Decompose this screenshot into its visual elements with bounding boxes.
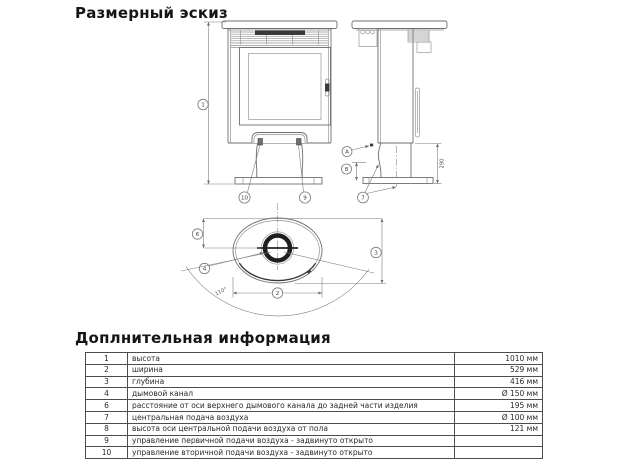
- callout-air-axis-height: 8: [342, 164, 352, 174]
- side-rear-grille: [408, 30, 429, 42]
- row-parameter: высота: [128, 353, 455, 365]
- svg-text:A: A: [345, 150, 349, 156]
- row-value: [455, 447, 543, 459]
- row-value: 1010 мм: [455, 353, 543, 365]
- table-row: 4 дымовой канал Ø 150 мм: [86, 388, 543, 400]
- row-parameter: высота оси центральной подачи воздуха от…: [128, 423, 455, 435]
- row-value: [455, 435, 543, 447]
- callout-primary-air: 9: [299, 192, 310, 203]
- svg-text:10: 10: [241, 196, 249, 202]
- table-row: 10 управление вторичной подачи воздуха -…: [86, 447, 543, 459]
- callout-secondary-air: 10: [239, 192, 250, 203]
- callout-flue-axis-to-back: 6: [192, 229, 202, 239]
- table-row: 3 глубина 416 мм: [86, 376, 543, 388]
- callout-flue: 4: [199, 263, 209, 273]
- front-view: 1 10 9: [198, 21, 337, 203]
- front-pedestal: [256, 143, 302, 178]
- row-number: 4: [86, 388, 128, 400]
- front-door: [240, 48, 331, 126]
- side-top-plate: [352, 21, 447, 29]
- row-value: 529 мм: [455, 364, 543, 376]
- front-grille: [231, 31, 329, 48]
- row-number: 3: [86, 376, 128, 388]
- pedestal-height-dim-text: 290: [439, 159, 445, 169]
- svg-text:3: 3: [374, 251, 378, 257]
- row-parameter: дымовой канал: [128, 388, 455, 400]
- row-number: 8: [86, 423, 128, 435]
- front-top-plate: [222, 21, 337, 29]
- callout-height: 1: [198, 99, 208, 109]
- svg-text:9: 9: [303, 196, 307, 202]
- table-row: 8 высота оси центральной подачи воздуха …: [86, 423, 543, 435]
- svg-text:7: 7: [361, 196, 365, 202]
- row-parameter: управление вторичной подачи воздуха - за…: [128, 447, 455, 459]
- svg-text:1: 1: [201, 103, 205, 109]
- row-parameter: управление первичной подачи воздуха - за…: [128, 435, 455, 447]
- info-table-body: 1 высота 1010 мм 2 ширина 529 мм 3 глуби…: [86, 353, 543, 459]
- side-view: A 8 7 290: [342, 21, 448, 203]
- door-angle-label: 110°: [214, 286, 228, 297]
- row-parameter: ширина: [128, 364, 455, 376]
- svg-text:6: 6: [196, 232, 200, 238]
- callout-depth: 3: [371, 247, 381, 257]
- secondary-air-knob: [258, 139, 263, 146]
- row-value: Ø 100 мм: [455, 411, 543, 423]
- table-row: 2 ширина 529 мм: [86, 364, 543, 376]
- side-door-handle: [416, 88, 420, 137]
- row-number: 7: [86, 411, 128, 423]
- front-door-handle: [325, 79, 330, 96]
- row-number: 10: [86, 447, 128, 459]
- callout-width: 2: [272, 288, 282, 298]
- dimensional-sketch: 1 10 9: [0, 0, 624, 332]
- flue-ring: [257, 232, 298, 264]
- height-dimension: [204, 22, 234, 184]
- primary-air-knob: [297, 139, 302, 146]
- row-parameter: глубина: [128, 376, 455, 388]
- info-table: 1 высота 1010 мм 2 ширина 529 мм 3 глуби…: [85, 352, 543, 459]
- table-row: 6 расстояние от оси верхнего дымового ка…: [86, 400, 543, 412]
- side-rear-panel: [359, 29, 377, 47]
- row-value: 121 мм: [455, 423, 543, 435]
- row-value: 416 мм: [455, 376, 543, 388]
- row-number: 9: [86, 435, 128, 447]
- row-parameter: расстояние от оси верхнего дымового кана…: [128, 400, 455, 412]
- row-number: 1: [86, 353, 128, 365]
- svg-text:8: 8: [345, 167, 349, 173]
- side-floor-plate: [363, 178, 433, 184]
- callout-detail-a: A: [342, 147, 352, 157]
- row-value: Ø 150 мм: [455, 388, 543, 400]
- svg-text:2: 2: [276, 291, 280, 297]
- front-floor-plate: [235, 178, 322, 185]
- row-number: 2: [86, 364, 128, 376]
- table-row: 9 управление первичной подачи воздуха - …: [86, 435, 543, 447]
- side-flue-box: [417, 42, 431, 53]
- svg-text:4: 4: [203, 267, 207, 273]
- row-value: 195 мм: [455, 400, 543, 412]
- top-view: 6 4 2 3 11: [181, 203, 386, 316]
- row-number: 6: [86, 400, 128, 412]
- info-title: Доплнительная информация: [75, 329, 331, 347]
- table-row: 7 центральная подача воздуха Ø 100 мм: [86, 411, 543, 423]
- row-parameter: центральная подача воздуха: [128, 411, 455, 423]
- table-row: 1 высота 1010 мм: [86, 353, 543, 365]
